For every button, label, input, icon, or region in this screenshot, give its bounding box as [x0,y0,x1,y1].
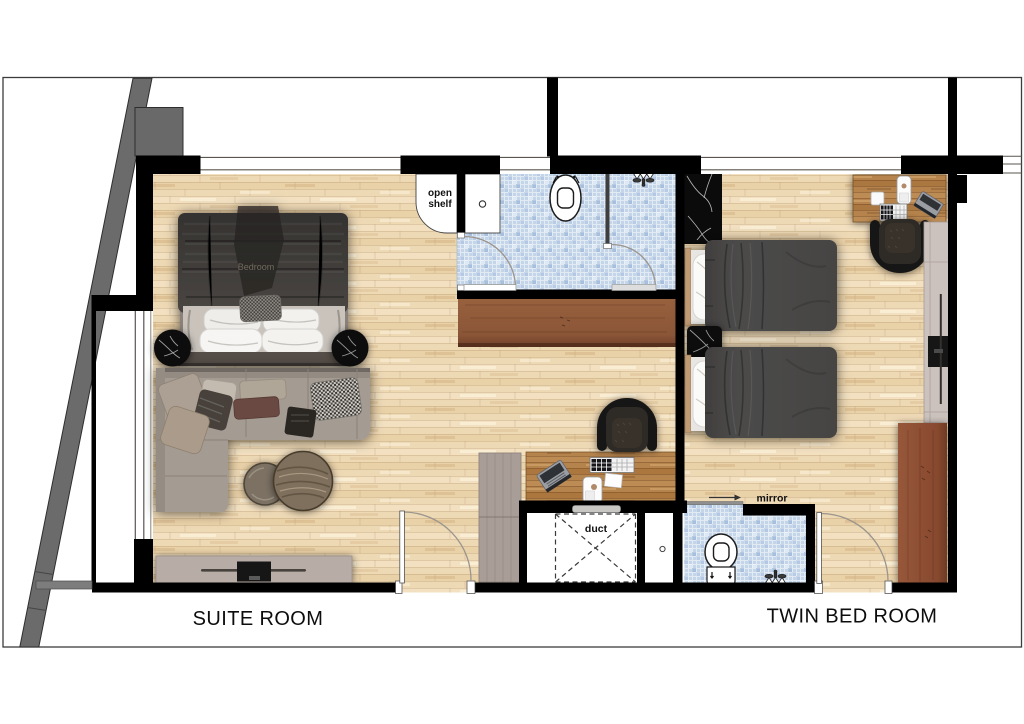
svg-text:TWIN BED ROOM: TWIN BED ROOM [767,606,938,628]
svg-text:duct: duct [585,523,608,535]
svg-text:Bedroom: Bedroom [238,262,275,272]
svg-text:mirror: mirror [757,493,788,505]
svg-text:SUITE ROOM: SUITE ROOM [193,608,324,630]
svg-text:shelf: shelf [428,199,452,210]
svg-text:open: open [428,188,452,199]
